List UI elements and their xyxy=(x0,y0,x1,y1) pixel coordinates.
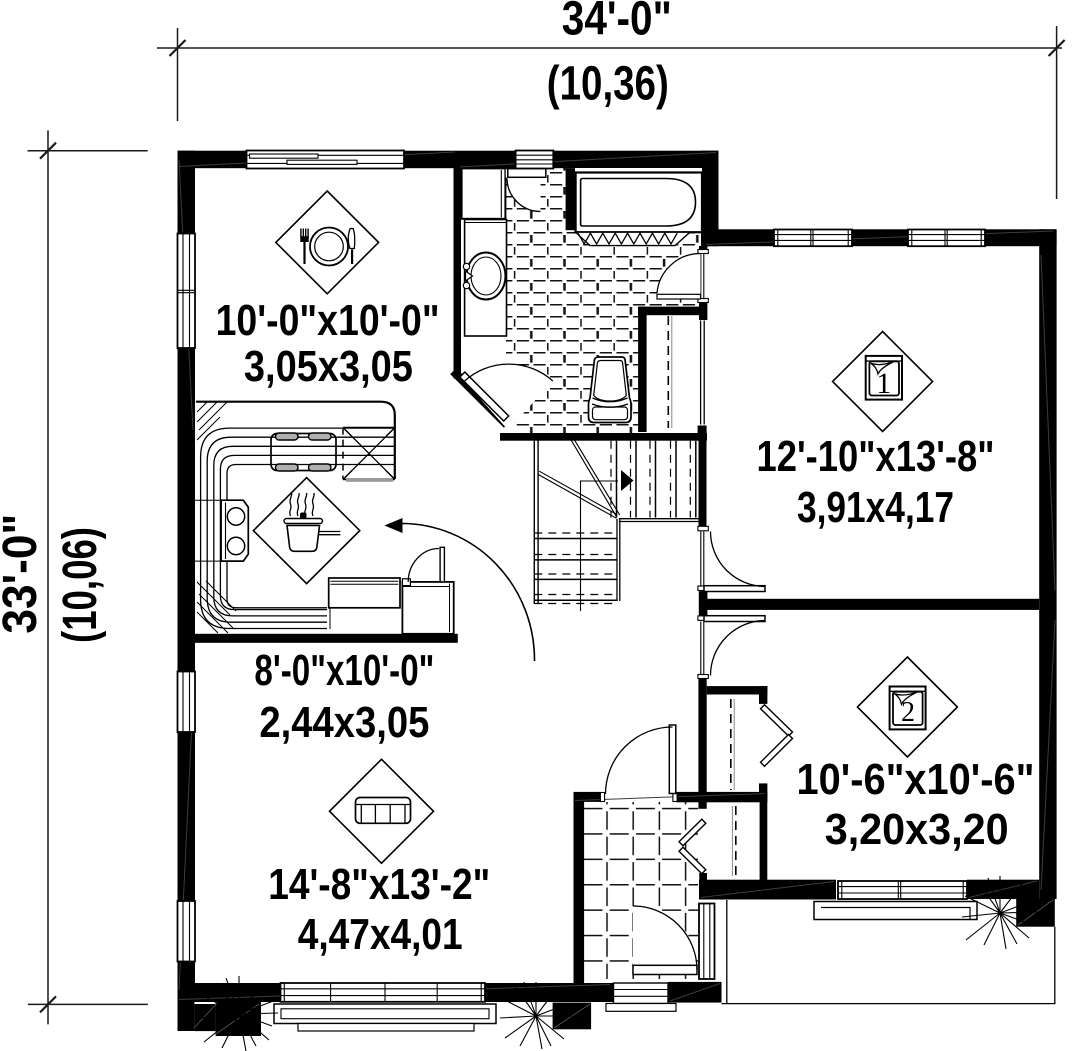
svg-text:10'-6"x10'-6": 10'-6"x10'-6" xyxy=(797,755,1035,804)
svg-text:3,05x3,05: 3,05x3,05 xyxy=(244,342,413,391)
svg-text:3,91x4,17: 3,91x4,17 xyxy=(797,483,954,532)
svg-text:1: 1 xyxy=(876,367,891,400)
svg-text:(10,36): (10,36) xyxy=(547,58,669,111)
svg-text:(10,06): (10,06) xyxy=(54,527,107,643)
svg-text:33'-0": 33'-0" xyxy=(0,514,47,634)
svg-text:8'-0"x10'-0": 8'-0"x10'-0" xyxy=(254,646,434,695)
svg-text:14'-8"x13'-2": 14'-8"x13'-2" xyxy=(268,860,490,909)
svg-text:4,47x4,01: 4,47x4,01 xyxy=(298,910,463,959)
svg-text:10'-0"x10'-0": 10'-0"x10'-0" xyxy=(216,296,440,345)
svg-text:2,44x3,05: 2,44x3,05 xyxy=(259,698,429,747)
svg-text:34'-0": 34'-0" xyxy=(562,0,672,46)
svg-text:2: 2 xyxy=(901,697,915,728)
svg-text:12'-10"x13'-8": 12'-10"x13'-8" xyxy=(757,432,995,481)
svg-text:3,20x3,20: 3,20x3,20 xyxy=(825,805,1009,854)
